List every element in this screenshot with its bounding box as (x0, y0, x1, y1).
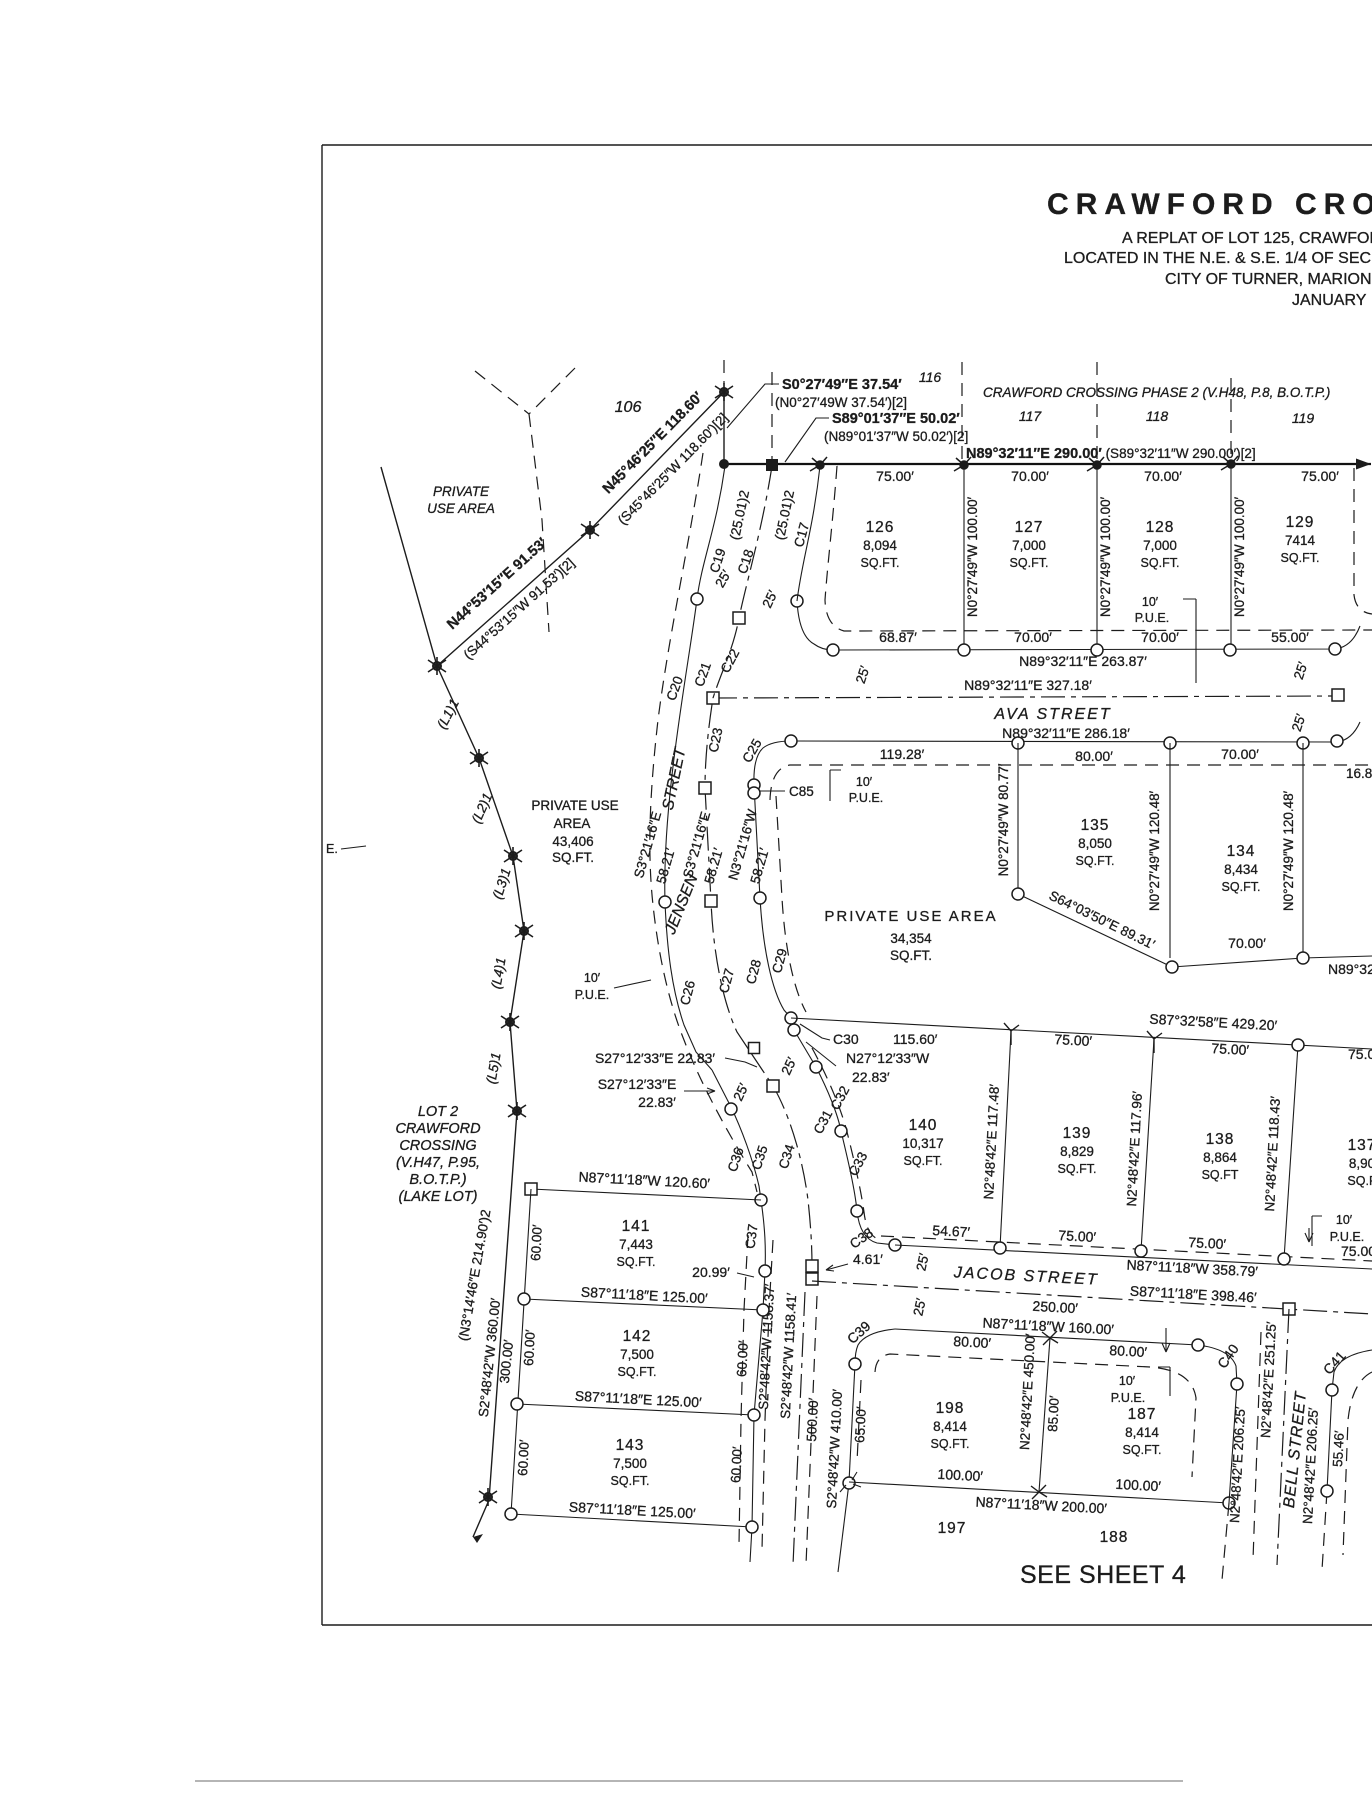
svg-text:SQ.FT.: SQ.FT. (1058, 1162, 1097, 1176)
svg-text:7,443: 7,443 (619, 1237, 653, 1252)
svg-text:70.00′: 70.00′ (1014, 629, 1052, 645)
svg-text:8,434: 8,434 (1224, 862, 1258, 877)
svg-text:139: 139 (1063, 1125, 1092, 1142)
svg-text:4.61′: 4.61′ (853, 1251, 883, 1267)
svg-text:142: 142 (623, 1328, 652, 1345)
svg-text:7,000: 7,000 (1143, 538, 1177, 553)
svg-text:SQ.FT.: SQ.FT. (1010, 556, 1049, 570)
svg-text:75.00′: 75.00′ (876, 468, 914, 484)
svg-text:60.00′: 60.00′ (728, 1446, 745, 1484)
svg-text:75.00′: 75.00′ (1058, 1227, 1097, 1245)
svg-text:10′: 10′ (1336, 1213, 1353, 1227)
svg-text:140: 140 (909, 1117, 938, 1134)
svg-text:SQ.FT.: SQ.FT. (1222, 880, 1261, 894)
svg-text:8,864: 8,864 (1203, 1150, 1237, 1165)
svg-text:60.00′: 60.00′ (521, 1329, 538, 1367)
svg-text:SQ.FT.: SQ.FT. (552, 850, 594, 865)
svg-text:54.67′: 54.67′ (932, 1222, 971, 1240)
svg-text:134: 134 (1227, 843, 1256, 860)
svg-text:115.60′: 115.60′ (893, 1031, 938, 1047)
svg-text:75.00: 75.00 (1341, 1243, 1372, 1259)
svg-text:188: 188 (1100, 1529, 1129, 1546)
svg-text:CROSSING: CROSSING (399, 1138, 476, 1154)
svg-text:60.00′: 60.00′ (734, 1340, 751, 1378)
svg-text:S27°12′33″E 22.83′: S27°12′33″E 22.83′ (595, 1050, 715, 1066)
svg-text:20.99′: 20.99′ (692, 1264, 730, 1280)
svg-text:8,414: 8,414 (933, 1419, 967, 1434)
svg-text:N27°12′33″W: N27°12′33″W (846, 1050, 930, 1066)
svg-text:AVA STREET: AVA STREET (993, 706, 1111, 723)
svg-text:500.00′: 500.00′ (804, 1397, 821, 1442)
svg-text:100.00′: 100.00′ (1115, 1476, 1162, 1494)
svg-text:106: 106 (615, 399, 642, 416)
svg-text:SQ.FT.: SQ.FT. (904, 1154, 943, 1168)
svg-text:8,414: 8,414 (1125, 1425, 1159, 1440)
svg-text:E.: E. (326, 842, 338, 856)
svg-text:68.87′: 68.87′ (879, 629, 917, 645)
svg-text:34,354: 34,354 (890, 931, 932, 946)
svg-text:SQ.FT.: SQ.FT. (890, 948, 932, 963)
svg-text:135: 135 (1081, 817, 1110, 834)
svg-text:N89°32′11″E 327.18′: N89°32′11″E 327.18′ (964, 677, 1092, 693)
svg-text:C30: C30 (833, 1031, 859, 1047)
svg-text:N0°27′49″W 100.00′: N0°27′49″W 100.00′ (965, 496, 980, 617)
svg-text:S27°12′33″E: S27°12′33″E (598, 1076, 677, 1092)
svg-text:SQ.FT.: SQ.FT. (861, 556, 900, 570)
svg-text:16.8: 16.8 (1346, 766, 1372, 781)
svg-text:C85: C85 (789, 784, 814, 799)
svg-text:(V.H47, P.95,: (V.H47, P.95, (396, 1155, 480, 1171)
svg-text:N0°27′49″W 100.00′: N0°27′49″W 100.00′ (1098, 496, 1113, 617)
svg-text:138: 138 (1206, 1131, 1235, 1148)
svg-text:80.00′: 80.00′ (953, 1333, 992, 1351)
svg-text:LOT 2: LOT 2 (418, 1104, 458, 1120)
svg-text:80.00′: 80.00′ (1075, 748, 1113, 764)
svg-text:128: 128 (1146, 519, 1175, 536)
svg-text:7,000: 7,000 (1012, 538, 1046, 553)
svg-text:CRAWFORD CROS: CRAWFORD CROS (1047, 188, 1372, 221)
svg-text:SQ.FT.: SQ.FT. (617, 1255, 656, 1269)
svg-text:117: 117 (1019, 408, 1043, 424)
svg-text:(N89°01′37″W 50.02′)[2]: (N89°01′37″W 50.02′)[2] (824, 429, 968, 444)
svg-text:198: 198 (936, 1400, 965, 1417)
svg-text:S89°01′37″E 50.02′: S89°01′37″E 50.02′ (832, 411, 960, 427)
svg-text:75.00′: 75.00′ (1211, 1040, 1250, 1058)
svg-text:SQ.FT.: SQ.FT. (1123, 1443, 1162, 1457)
svg-text:SQ.FT.: SQ.FT. (1281, 551, 1320, 565)
svg-text:141: 141 (622, 1218, 651, 1235)
svg-text:22.83′: 22.83′ (852, 1069, 890, 1085)
svg-text:A REPLAT OF LOT 125, CRAWFORD: A REPLAT OF LOT 125, CRAWFORD CR (1122, 230, 1372, 247)
svg-text:8,90: 8,90 (1349, 1156, 1372, 1171)
svg-text:CRAWFORD: CRAWFORD (395, 1121, 480, 1137)
svg-text:8,050: 8,050 (1078, 836, 1112, 851)
svg-text:8,829: 8,829 (1060, 1144, 1094, 1159)
svg-text:119.28′: 119.28′ (880, 746, 925, 762)
svg-text:SQ.FT.: SQ.FT. (931, 1437, 970, 1451)
svg-text:SQ.FT.: SQ.FT. (611, 1474, 650, 1488)
svg-text:CITY OF TURNER, MARION: CITY OF TURNER, MARION (1165, 271, 1372, 288)
svg-text:22.83′: 22.83′ (638, 1094, 676, 1110)
svg-text:70.00′: 70.00′ (1221, 746, 1259, 762)
svg-text:P.U.E.: P.U.E. (1330, 1230, 1365, 1244)
svg-text:N89°32′11″E 290.00′ (S89°32′1: N89°32′11″E 290.00′ (S89°32′11″W 290.00′… (966, 446, 1256, 462)
svg-text:(LAKE LOT): (LAKE LOT) (399, 1189, 478, 1205)
svg-text:PRIVATE: PRIVATE (433, 484, 490, 499)
svg-text:10′: 10′ (584, 971, 601, 985)
svg-text:116: 116 (919, 369, 942, 385)
svg-text:USE AREA: USE AREA (427, 501, 495, 516)
svg-text:60.00′: 60.00′ (528, 1224, 545, 1262)
svg-text:55.00′: 55.00′ (1271, 629, 1309, 645)
svg-text:137: 137 (1348, 1137, 1372, 1154)
svg-text:SQ.FT.: SQ.FT. (1141, 556, 1180, 570)
svg-text:CRAWFORD CROSSING PHASE 2: CRAWFORD CROSSING PHASE 2 (V.H48, P.8, B… (983, 385, 1330, 400)
svg-text:8,094: 8,094 (863, 538, 897, 553)
svg-text:LOCATED IN THE N.E. & S.E. 1/4: LOCATED IN THE N.E. & S.E. 1/4 OF SEC (1064, 250, 1371, 267)
svg-text:100.00′: 100.00′ (937, 1466, 984, 1484)
svg-text:7,500: 7,500 (620, 1347, 654, 1362)
svg-text:7414: 7414 (1285, 533, 1316, 548)
svg-text:B.O.T.P.): B.O.T.P.) (409, 1172, 466, 1188)
svg-text:P.U.E.: P.U.E. (1111, 1391, 1146, 1405)
svg-text:119: 119 (1292, 410, 1315, 426)
svg-text:55.46′: 55.46′ (1330, 1430, 1347, 1468)
svg-text:PRIVATE USE: PRIVATE USE (531, 798, 618, 813)
svg-text:P.U.E.: P.U.E. (575, 988, 610, 1002)
svg-text:75.0: 75.0 (1348, 1046, 1372, 1062)
svg-text:N0°27′49″W 80.77′: N0°27′49″W 80.77′ (996, 763, 1011, 876)
svg-text:118: 118 (1146, 408, 1169, 424)
svg-text:60.00′: 60.00′ (515, 1439, 532, 1477)
svg-text:N89°32′11″E 263.87′: N89°32′11″E 263.87′ (1019, 653, 1147, 669)
svg-text:75.00′: 75.00′ (1188, 1234, 1227, 1252)
svg-text:PRIVATE USE AREA: PRIVATE USE AREA (824, 908, 997, 925)
svg-text:10′: 10′ (856, 775, 873, 789)
svg-text:AREA: AREA (554, 816, 591, 831)
svg-text:70.00′: 70.00′ (1011, 468, 1049, 484)
svg-text:SQ.F: SQ.F (1347, 1174, 1372, 1188)
svg-text:N0°27′49″W 100.00′: N0°27′49″W 100.00′ (1232, 496, 1247, 617)
svg-text:70.00′: 70.00′ (1228, 935, 1266, 951)
svg-text:SQ.FT.: SQ.FT. (618, 1365, 657, 1379)
svg-text:P.U.E.: P.U.E. (1135, 611, 1170, 625)
svg-text:N0°27′49″W 120.48′: N0°27′49″W 120.48′ (1147, 790, 1162, 911)
svg-text:70.00′: 70.00′ (1141, 629, 1179, 645)
svg-text:43,406: 43,406 (552, 834, 593, 849)
svg-text:75.00′: 75.00′ (1301, 468, 1339, 484)
svg-text:187: 187 (1128, 1406, 1157, 1423)
svg-text:N0°27′49″W 120.48′: N0°27′49″W 120.48′ (1281, 790, 1296, 911)
svg-text:7,500: 7,500 (613, 1456, 647, 1471)
svg-text:(N0°27′49W 37.54′)[2]: (N0°27′49W 37.54′)[2] (775, 395, 907, 410)
svg-text:P.U.E.: P.U.E. (849, 791, 884, 805)
svg-text:129: 129 (1286, 514, 1315, 531)
svg-text:S0°27′49″E 37.54′: S0°27′49″E 37.54′ (782, 377, 902, 393)
svg-text:127: 127 (1015, 519, 1044, 536)
svg-text:65.00′: 65.00′ (852, 1406, 869, 1444)
svg-text:JANUARY: JANUARY (1292, 292, 1367, 309)
svg-text:126: 126 (866, 519, 895, 536)
svg-text:N89°32: N89°32 (1328, 961, 1372, 977)
svg-text:10′: 10′ (1142, 595, 1159, 609)
svg-text:10′: 10′ (1119, 1374, 1136, 1388)
svg-text:SQ.FT: SQ.FT (1202, 1168, 1239, 1182)
svg-text:80.00′: 80.00′ (1109, 1342, 1148, 1360)
svg-text:SEE SHEET 4: SEE SHEET 4 (1020, 1561, 1186, 1589)
svg-text:197: 197 (938, 1520, 967, 1537)
svg-text:250.00′: 250.00′ (1032, 1298, 1079, 1316)
svg-text:SQ.FT.: SQ.FT. (1076, 854, 1115, 868)
svg-text:143: 143 (616, 1437, 645, 1454)
svg-text:70.00′: 70.00′ (1144, 468, 1182, 484)
svg-text:75.00′: 75.00′ (1054, 1031, 1093, 1049)
svg-text:85.00′: 85.00′ (1045, 1395, 1062, 1433)
svg-text:10,317: 10,317 (902, 1136, 943, 1151)
